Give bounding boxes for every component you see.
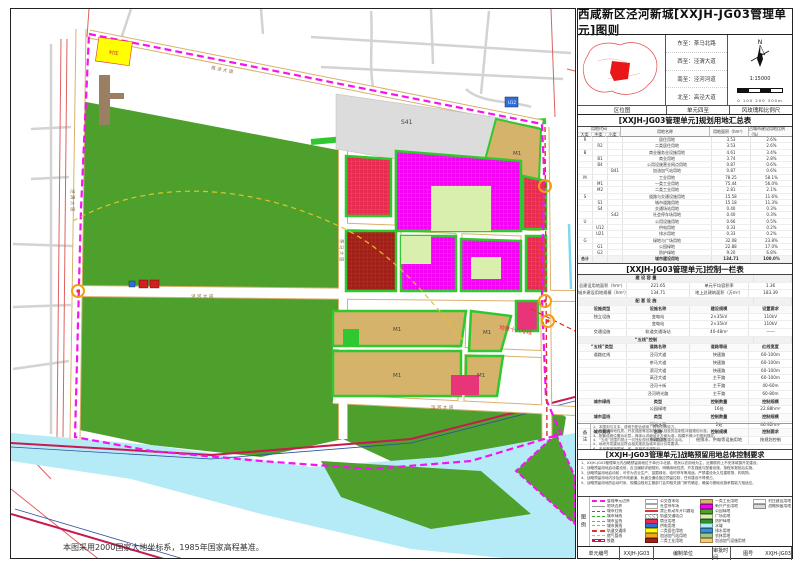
caption-compass: 风玫瑰和比例尺: [730, 106, 792, 114]
road-label-chama: 茶 马 大 道: [338, 239, 345, 262]
control-row: “五线”类型道路名称 道路等级红线宽度: [578, 344, 792, 352]
legend-swatch: [592, 500, 605, 502]
legend: 图例 管理单元边界地块边界城市红线城市绿线城市蓝线城市黄线轨道交通线燃气管线铁路…: [578, 496, 792, 546]
legend-col-landuse: 一类工业用地新兴产业用地公园绿地广场用地防护绿地水域排水用地农林用地加油加气设施…: [698, 497, 751, 546]
legend-swatch: [645, 538, 658, 543]
control-row: 公园绿地 16处22.88hm²: [578, 406, 792, 414]
control-row: 泾河十街 主干路40-60m: [578, 383, 792, 391]
control-table-title: [XXJH-JG03管理单元]控制一栏表: [578, 263, 792, 275]
canal-line: [569, 224, 571, 289]
info-panel: 西咸新区泾河新城[XXJH-JG03管理单元]图则 东至：茶马北路 西至：泾渭大…: [577, 8, 793, 559]
village-block: 村庄: [95, 37, 132, 65]
footer-cell: XXJH-JG03: [765, 547, 792, 560]
location-map: [578, 35, 666, 105]
footer-bar: 单元编号XXJH-JG03编制单位审批时间图号XXJH-JG03: [578, 546, 792, 560]
control-row: 交通设施轨道交通场站 40-48m²——: [578, 329, 792, 337]
m1-label-a: M1: [393, 327, 401, 333]
strategic-paragraph: 1、XXJH-JG03管理单元内战略预留用地位于单元中北部，现状以农用地为主，近…: [581, 461, 789, 465]
scale-bar: [737, 88, 783, 93]
legend-swatch: [592, 539, 605, 542]
footer-cell: 编制单位: [654, 547, 713, 560]
location-row: 东至：茶马北路 西至：泾渭大道 南至：泾河河道 北至：高泾大道 N 1:1500…: [578, 35, 792, 105]
planning-map: 村庄 S41 M1 U12 M1 M1 M1 M1 高 泾 大 道: [10, 8, 576, 559]
m1-label-b: M1: [483, 330, 491, 336]
m1-label-d: M1: [477, 373, 485, 379]
control-row: 泾河明光路 主干路60-80m: [578, 391, 792, 399]
control-row: 配 套 设 施: [578, 298, 792, 306]
notes-list: 1、本图则与文本、说明书配合使用，具有同等效力。2、各地块用地性质、开发强度等控…: [591, 424, 792, 449]
map-canvas: 村庄 S41 M1 U12 M1 M1 M1 M1 高 泾 大 道: [11, 9, 575, 558]
legend-item: 战略预留用地: [753, 504, 791, 509]
legend-swatch: [592, 521, 605, 522]
notes-block: 备注 1、本图则与文本、说明书配合使用，具有同等效力。2、各地块用地性质、开发强…: [578, 423, 792, 449]
control-table: 建 设 容 量 总建设用地面积（hm²）221.65 单元平均容积率1.36 城…: [578, 275, 792, 423]
strategic-title: [XXJH-JG03管理单元]战略预留用地总体控制要求: [578, 449, 792, 460]
footer-cell: XXJH-JG03: [620, 547, 654, 560]
road-label-binhe: 滨 河 大 道: [431, 404, 454, 411]
brown-strip-arm: [110, 93, 124, 99]
legend-swatch: [592, 535, 605, 536]
caption-bounds: 单元四至: [667, 106, 730, 114]
unit-bounds: 东至：茶马北路 西至：泾渭大道 南至：泾河河道 北至：高泾大道: [666, 35, 728, 105]
landuse-table-body: R 居住用地3.532.6% R2 二类居住用地3.532.6% B 商业服务业…: [578, 137, 792, 264]
m1-label-north: M1: [513, 151, 521, 157]
footer-cell: 单元编号: [578, 547, 620, 560]
block-cluster: [346, 151, 546, 331]
bound-north: 北至：高泾大道: [666, 88, 727, 105]
park-green-area: [75, 101, 343, 457]
control-row: 茶马大道 快速路60-100m: [578, 360, 792, 368]
road-label-jinghe: 泾 河 大 道: [191, 293, 214, 300]
brown-strip-block: [99, 75, 110, 125]
plan-sheet: 村庄 S41 M1 U12 M1 M1 M1 M1 高 泾 大 道: [0, 0, 800, 566]
strategic-text: 1、XXJH-JG03管理单元内战略预留用地位于单元中北部，现状以农用地为主，近…: [578, 460, 792, 496]
location-map-canvas: [578, 35, 664, 103]
m1-label-c: M1: [393, 373, 401, 379]
legend-swatch: [592, 511, 605, 512]
legend-col-facilities: 公交首末站社会停车场禁止机动车开口路段轨道交通站点商业用地供电用地二类居住用地加…: [643, 497, 698, 546]
strategic-paragraph: 4、战略预留用地内涉及的市政廊道、轨道交通设施应预留控制，任何建设不得侵占。: [581, 476, 789, 480]
caption-row: 区位图 单元四至 风玫瑰和比例尺: [578, 105, 792, 115]
legend-item: 加油加气设施用地: [700, 538, 750, 543]
scale-ticks: 0 100 200 300m: [737, 98, 782, 103]
legend-swatch: [700, 538, 713, 543]
control-row: 城乡建设用地规模（hm²）134.71 地上总建筑面积（万m²）183.39: [578, 290, 792, 298]
control-row: 滨河大道 快速路60-100m: [578, 368, 792, 376]
control-row: 总建设用地面积（hm²）221.65 单元平均容积率1.36: [578, 283, 792, 291]
landuse-table: 用地代码 大类 中类 小类 用地名称 用地面积（hm²） 占城市建设用地比例（%…: [578, 127, 792, 263]
legend-col-lines: 管理单元边界地块边界城市红线城市绿线城市蓝线城市黄线轨道交通线燃气管线铁路: [590, 497, 643, 546]
control-row: 高泾大道 主干路60-100m: [578, 375, 792, 383]
control-row: 变电站 2×35kV110kV: [578, 321, 792, 329]
control-row: 独立设施变电站 2×35kV110kV: [578, 314, 792, 322]
control-row: 城市绿线类型 控制数量控制规模: [578, 399, 792, 407]
legend-item: 铁路: [592, 538, 642, 543]
road-label-jingwei: 泾 渭 大 道: [69, 189, 76, 212]
legend-label: 图例: [578, 497, 590, 546]
footer-cell: 审批时间: [713, 547, 731, 560]
strategic-paragraph: 2、战略预留用地启动建设前，应当编制详细规划，明确用地性质、开发强度与配套设施，…: [581, 466, 789, 470]
control-row: 设施类型设施名称 建设规模设置要求: [578, 306, 792, 314]
control-row: 城市蓝线类型 控制数量控制规模: [578, 414, 792, 422]
strategic-paragraph: 3、战略预留用地启动前，可作为农业生产、苗圃绿化、临时停车等用途，严禁建设永久性…: [581, 471, 789, 475]
control-row: “五线”控制: [578, 337, 792, 345]
legend-item: 二类工业用地: [645, 538, 697, 543]
scale-text: 1:15000: [750, 76, 771, 82]
footer-cell: 图号: [731, 547, 765, 560]
legend-swatch: [592, 530, 605, 532]
strategic-paragraph: 5、战略预留用地的启动时序、规模由规划主管部门会同相关部门研究确定，确保与基础设…: [581, 481, 789, 485]
u12-label: U12: [508, 100, 516, 105]
legend-swatch: [592, 506, 605, 507]
legend-swatch: [592, 516, 605, 517]
unit-highlight: [610, 61, 630, 81]
sheet-title: 西咸新区泾河新城[XXJH-JG03管理单元]图则: [578, 9, 792, 35]
bound-east: 东至：茶马北路: [666, 35, 727, 53]
control-row: 建 设 容 量: [578, 275, 792, 283]
datum-note: 本图采用2000国家大地坐标系，1985年国家高程基准。: [63, 542, 264, 552]
s41-label: S41: [401, 119, 413, 126]
control-row: 道路红线泾河大道 快速路60-100m: [578, 352, 792, 360]
bound-south: 南至：泾河河道: [666, 71, 727, 89]
landuse-table-header: 用地代码 大类 中类 小类 用地名称 用地面积（hm²） 占城市建设用地比例（%…: [578, 127, 792, 137]
village-label: 村庄: [108, 49, 119, 57]
legend-col-other: 村庄建设用地战略预留用地: [751, 497, 792, 546]
bus-stop-markers: [129, 280, 159, 288]
compass-icon: N: [745, 37, 775, 71]
notes-label: 备注: [578, 424, 591, 449]
bound-west: 西至：泾渭大道: [666, 53, 727, 71]
legend-swatch: [645, 504, 658, 509]
legend-swatch: [645, 510, 658, 512]
legend-swatch: [592, 525, 605, 526]
compass-scale: N 1:15000 0 100 200 300m: [728, 35, 792, 105]
caption-location: 区位图: [578, 106, 667, 114]
legend-swatch: [753, 504, 766, 509]
